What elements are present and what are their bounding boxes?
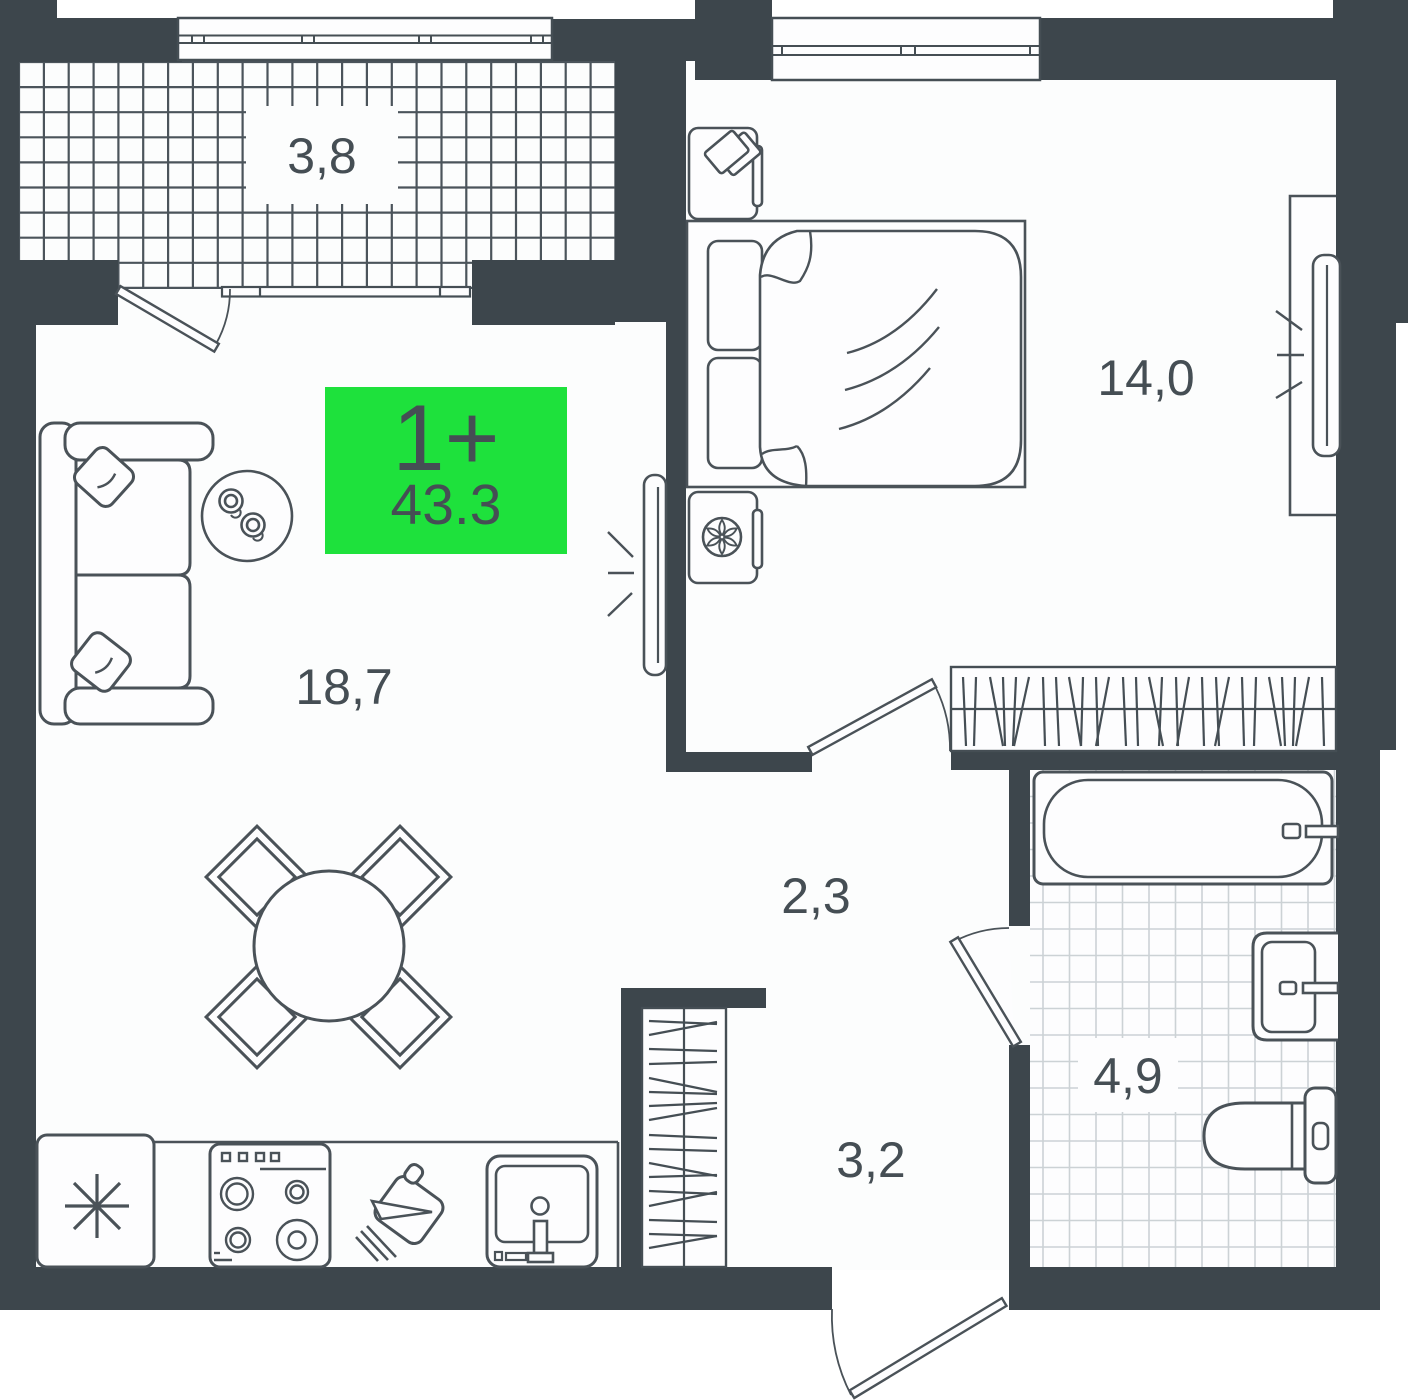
svg-text:18,7: 18,7 (295, 659, 392, 715)
svg-text:3,8: 3,8 (287, 128, 357, 184)
svg-text:4,9: 4,9 (1093, 1048, 1163, 1104)
svg-text:2,3: 2,3 (781, 868, 851, 924)
svg-text:43.3: 43.3 (391, 473, 502, 537)
svg-text:14,0: 14,0 (1097, 350, 1194, 406)
svg-text:3,2: 3,2 (836, 1132, 906, 1188)
